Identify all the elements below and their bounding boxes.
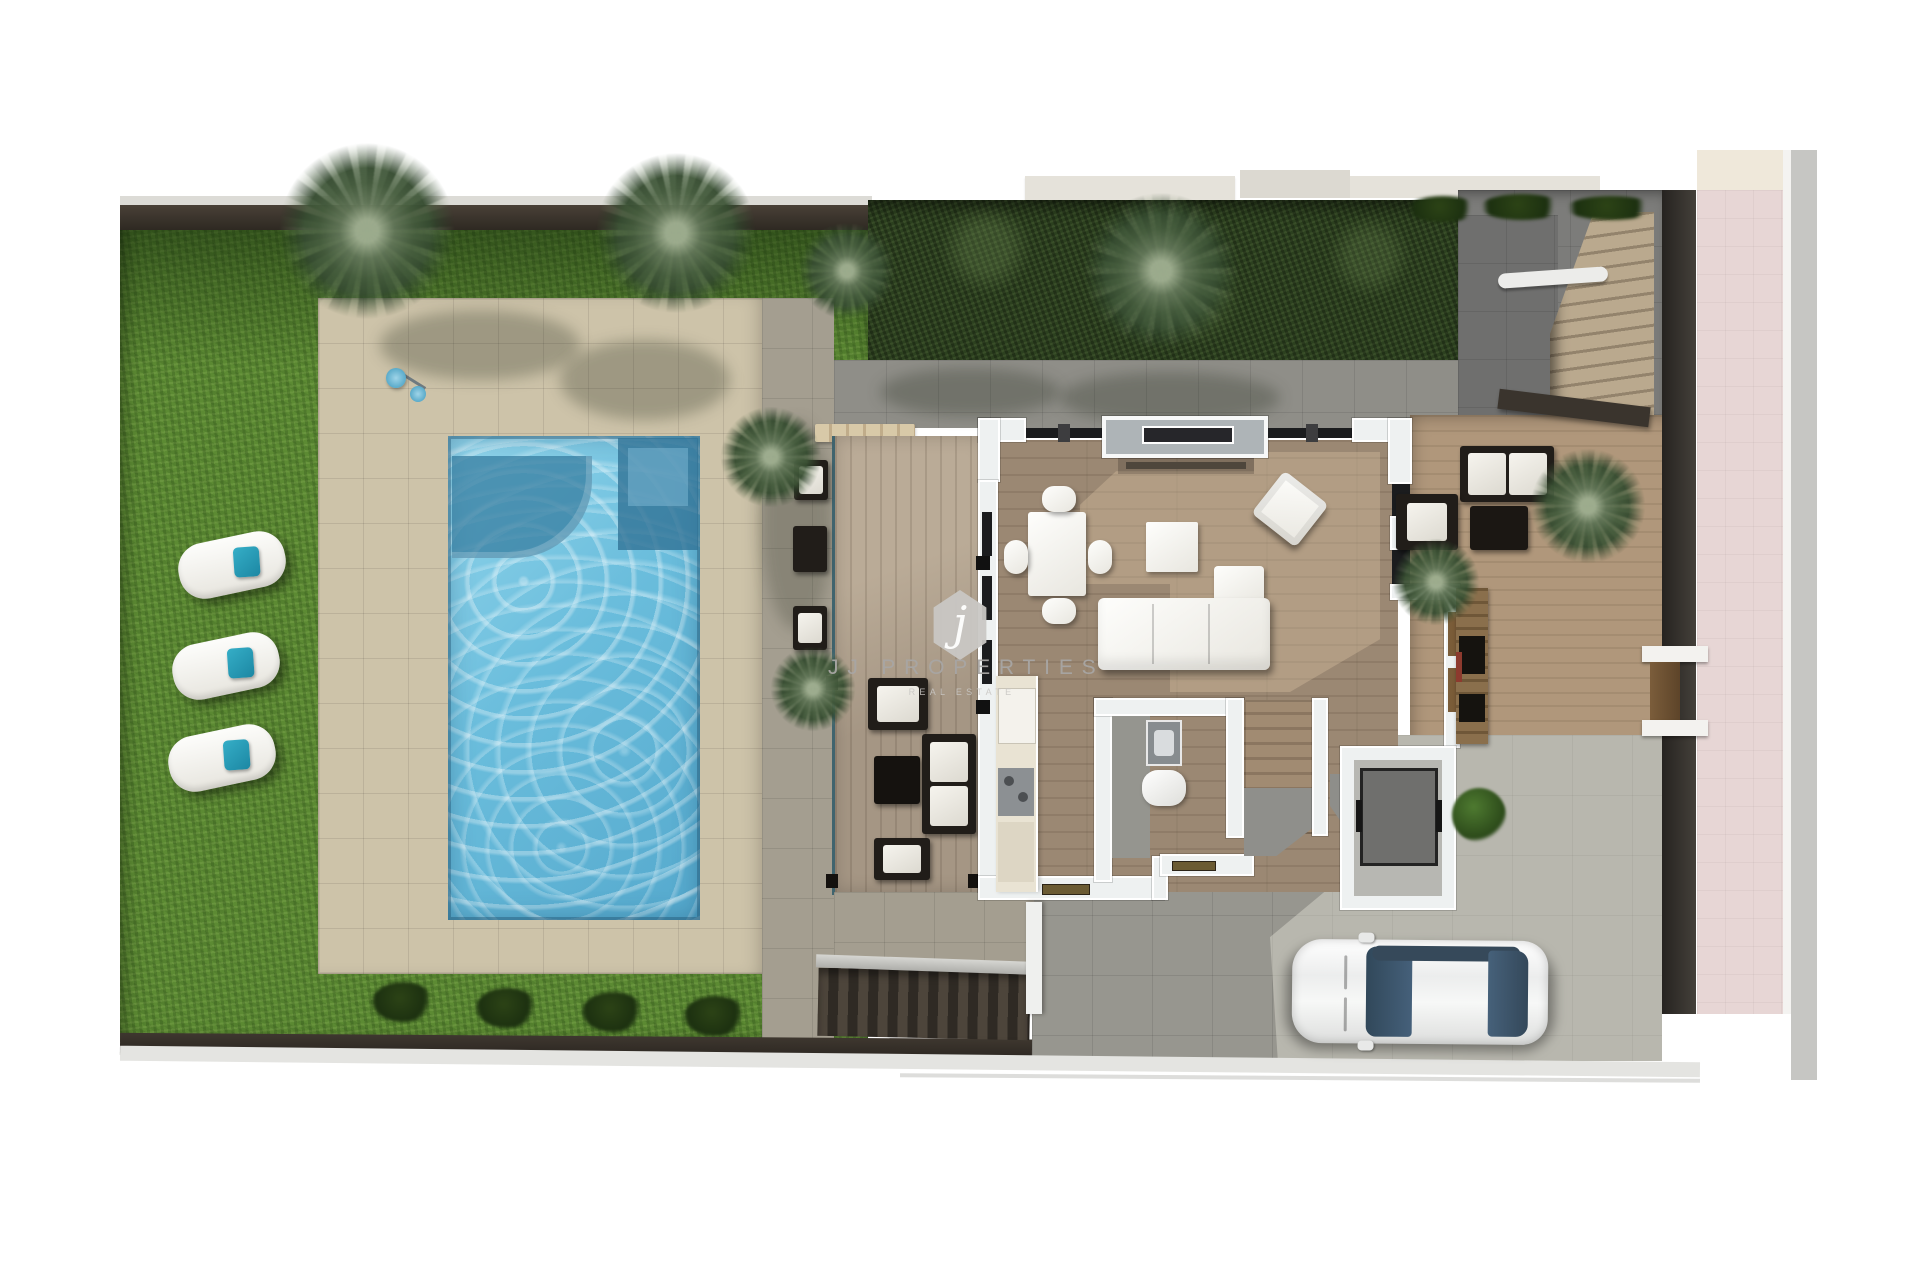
toilet [1142, 770, 1186, 806]
white-pillar [1026, 902, 1042, 1014]
palm-tree-5 [720, 406, 822, 508]
side-gate-bottom-bar [1642, 720, 1708, 736]
tv-screen [1142, 426, 1234, 444]
utility-unit [1360, 768, 1438, 866]
dining-chair-top [1042, 486, 1076, 512]
vine-1 [1408, 196, 1478, 222]
door-threshold-south-1 [1042, 884, 1090, 895]
stove-burner-1 [1004, 776, 1014, 786]
wall-nw-corner-v [978, 418, 1000, 482]
window-mullion-2 [1306, 424, 1318, 442]
car-hood-line-2 [1344, 997, 1347, 1031]
porch-chair-south [874, 838, 930, 880]
boundary-wall-east [1662, 190, 1696, 1014]
watermark-tagline: REAL ESTATE [828, 687, 1096, 697]
porch-sofa [922, 734, 976, 834]
kitchen-lower-cabinet [998, 822, 1034, 882]
bathroom-sink-basin [1154, 730, 1174, 756]
window-mullion-1 [1058, 424, 1070, 442]
shelving-dark-box-1 [1459, 636, 1485, 674]
palm-tree-2 [595, 152, 757, 314]
wall-bath-right [1226, 698, 1244, 838]
side-gate-top-bar [1642, 646, 1708, 662]
side-gate-panel [1650, 662, 1680, 722]
wall-bath-top [1094, 698, 1244, 716]
wall-ne-corner-v [1388, 418, 1412, 484]
palm-shadow-deck-1 [380, 310, 580, 380]
car-mirror-bottom [1358, 1040, 1374, 1050]
palm-tree-1 [278, 142, 456, 320]
utility-unit-bar-right [1436, 800, 1442, 832]
kitchen-stove [998, 768, 1034, 816]
watermark: JJ PROPERTIES REAL ESTATE [828, 656, 1096, 697]
lounger-pillow-icon [223, 739, 251, 771]
floor-plan-render: j JJ PROPERTIES REAL ESTATE [0, 0, 1920, 1280]
sofa-cushion-line-2 [1208, 604, 1210, 664]
stove-burner-2 [1018, 792, 1028, 802]
car [1292, 939, 1549, 1051]
dining-chair-bottom [1042, 598, 1076, 624]
garden-bush-2 [476, 988, 538, 1028]
palm-shadow-deck-2 [560, 340, 730, 420]
dining-table [1028, 512, 1086, 596]
street-gray-band [1791, 150, 1817, 1080]
vine-2 [1480, 194, 1564, 220]
sidewalk-white-edge [1783, 150, 1791, 1014]
north-fence-curb [120, 196, 872, 205]
outdoor-shower-head-1 [386, 368, 406, 388]
terrace-coffee-table [1470, 506, 1528, 550]
door-post-west-1 [976, 556, 990, 570]
garden-bush-3 [582, 992, 644, 1032]
sofa [1098, 598, 1270, 670]
coffee-table [1146, 522, 1198, 572]
vine-3 [1566, 196, 1656, 220]
neighbor-roof-strip-1 [1025, 176, 1235, 200]
palm-tree-3 [1082, 192, 1240, 350]
door-post-west-2 [976, 700, 990, 714]
sidewalk-cream-cap [1697, 150, 1783, 192]
utility-unit-bar-left [1356, 800, 1362, 832]
wall-bath-left [1094, 698, 1112, 882]
watermark-brand: JJ PROPERTIES [828, 656, 1096, 680]
car-mirror-top [1358, 932, 1374, 942]
outdoor-chair-west-2 [793, 606, 827, 650]
lounger-pillow-icon [227, 647, 255, 679]
palm-shadow-paving-1 [880, 368, 1060, 416]
sidewalk-pink [1697, 190, 1783, 1014]
watermark-monogram: j [953, 596, 967, 650]
outdoor-side-table-west [793, 526, 827, 572]
pool-ledge-step [628, 448, 688, 506]
tv-console [1126, 462, 1246, 469]
garden-bush-1 [372, 982, 434, 1022]
wall-stair-right [1312, 698, 1328, 836]
palm-tree-6 [1530, 448, 1646, 564]
shelving-red-accent [1456, 652, 1462, 682]
lounger-pillow-icon [233, 546, 261, 578]
dining-chair-right [1088, 540, 1112, 574]
car-hood-line-1 [1344, 955, 1347, 989]
porch-coffee-table [874, 756, 920, 804]
neighbor-roof-strip-2 [1240, 170, 1350, 198]
dining-chair-left [1004, 540, 1028, 574]
shelving-dark-box-2 [1459, 694, 1485, 722]
round-bush-utility [1452, 788, 1506, 842]
porch-post-2 [826, 874, 838, 888]
car-rear-window [1488, 951, 1529, 1037]
outdoor-shower-head-2 [410, 386, 426, 402]
door-threshold-south-2 [1172, 861, 1216, 871]
palm-tree-7 [1392, 538, 1480, 626]
window-west-1 [982, 512, 992, 556]
garden-bush-4 [684, 996, 746, 1036]
sofa-cushion-line-1 [1152, 604, 1154, 664]
north-fence [120, 204, 872, 230]
exterior-staircase-south [817, 968, 1030, 1040]
palm-tree-4 [798, 222, 896, 320]
